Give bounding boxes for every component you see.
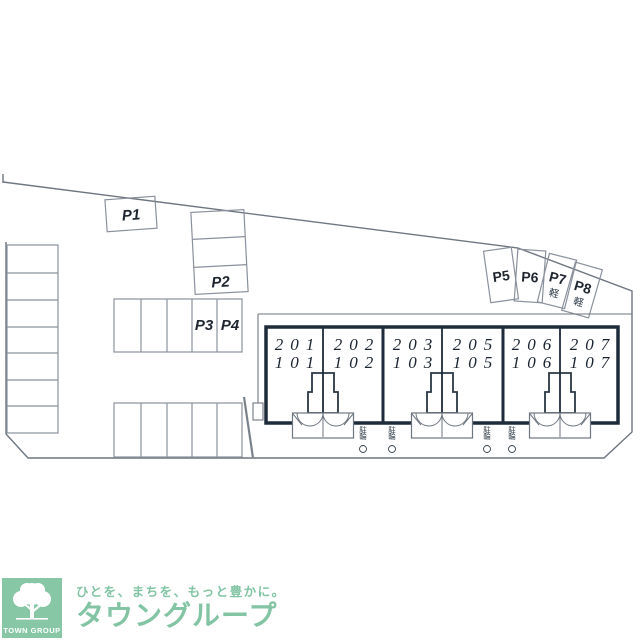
parking-stall-p2-label: P2 [211, 273, 231, 291]
parking-stall-p5: P5 [484, 247, 519, 302]
parking-stall-p3-label: P3 [195, 317, 214, 334]
unit-206-label: 206 [512, 335, 559, 354]
parking-stall-p8-label: P8 [572, 277, 593, 297]
parking-stall-p1-label: P1 [121, 206, 141, 224]
unit-205-label: 205 [453, 335, 500, 354]
unit-203-label: 203 [393, 335, 440, 354]
parking-stall-p4-label: P4 [221, 317, 240, 334]
bike-parking-circle-icon [360, 446, 367, 453]
parking-stall-p8-kei-label: 軽 [572, 295, 585, 309]
parking-stall-p7-label: P7 [547, 268, 568, 288]
unit-202-label: 202 [334, 335, 381, 354]
parking-column-p2: P2 [191, 210, 248, 295]
bike-parking-circle-icon [389, 446, 396, 453]
unit-201-label: 201 [275, 335, 322, 354]
bike-parking-icon: 駐輪 [507, 425, 516, 442]
parking-column-left [7, 245, 58, 433]
unit-106-label: 106 [512, 353, 559, 372]
company-logo: TOWN GROUP ひとを、まちを、もっと豊かに。 タウングループ [2, 578, 286, 638]
meter-box [253, 403, 263, 420]
unit-101-label: 101 [275, 353, 322, 372]
unit-107-label: 107 [570, 353, 617, 372]
parking-stall-p1: P1 [105, 196, 157, 231]
tree-icon [2, 578, 62, 626]
logo-texts: ひとを、まちを、もっと豊かに。 タウングループ [76, 578, 286, 631]
unit-207-label: 207 [570, 335, 617, 354]
site-plan-drawing: P3 P4 P1 P2 P5 P6 P7 軽 P8 軽 [0, 0, 640, 640]
bike-parking-icon: 駐輪 [358, 425, 367, 442]
unit-102-label: 102 [334, 353, 381, 372]
logo-tagline: ひとを、まちを、もっと豊かに。 [76, 586, 286, 599]
parking-stall-p6-label: P6 [521, 268, 539, 285]
bike-parking-icon: 駐輪 [482, 425, 491, 442]
bike-parking-circle-icon [509, 446, 516, 453]
unit-103-label: 103 [393, 353, 440, 372]
parking-stall-p8: P8 軽 [562, 262, 603, 318]
logo-emblem: TOWN GROUP [2, 578, 62, 638]
fence-line [244, 397, 253, 458]
logo-emblem-text: TOWN GROUP [2, 626, 62, 635]
floorplan-canvas: P3 P4 P1 P2 P5 P6 P7 軽 P8 軽 [0, 0, 640, 640]
parking-row-bottom [114, 403, 242, 457]
bike-parking-icon: 駐輪 [387, 425, 396, 442]
parking-stall-p7-kei-label: 軽 [548, 287, 561, 301]
unit-105-label: 105 [453, 353, 500, 372]
parking-stall-p5-label: P5 [492, 267, 511, 285]
logo-brand-name: タウングループ [76, 601, 286, 632]
bike-parking-circle-icon [484, 446, 491, 453]
